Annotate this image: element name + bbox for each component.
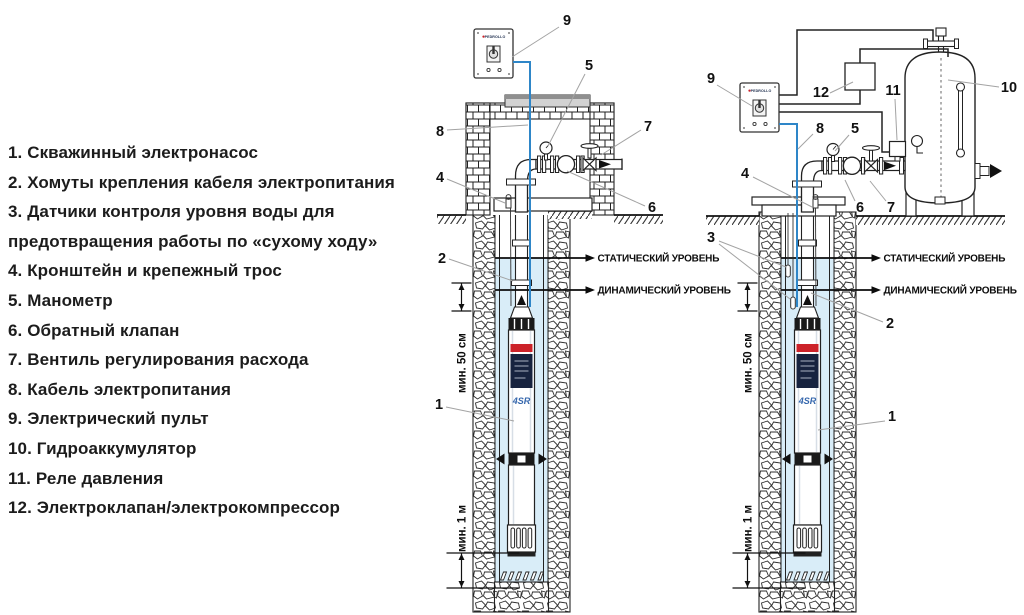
legend-item: 3. Датчики контроля уровня воды для пред… bbox=[8, 197, 444, 256]
cable-clamp bbox=[512, 280, 532, 286]
level-arrow-icon bbox=[586, 286, 596, 293]
callout-9: 9 bbox=[707, 71, 715, 87]
callout-3: 3 bbox=[707, 230, 715, 246]
level-arrow-icon bbox=[872, 286, 882, 293]
riser-pipe bbox=[516, 210, 528, 308]
pump-model-label: 4SR bbox=[512, 396, 531, 406]
check-valve-dome bbox=[797, 307, 819, 318]
callout-1: 1 bbox=[888, 409, 896, 425]
callout-11: 11 bbox=[885, 83, 900, 99]
check-valve bbox=[843, 157, 860, 174]
electrovalve-box bbox=[845, 63, 875, 90]
dimension-min-50cm: мин. 50 см bbox=[452, 283, 472, 393]
control-panel: PEDROLLO bbox=[474, 29, 513, 78]
callout-10: 10 bbox=[1001, 80, 1017, 96]
legend-item: 6. Обратный клапан bbox=[8, 316, 444, 346]
callout-6: 6 bbox=[856, 200, 864, 216]
cable-clamp bbox=[798, 280, 818, 286]
legend-item: 11. Реле давления bbox=[8, 464, 444, 494]
callout-2: 2 bbox=[886, 316, 894, 332]
level-arrow-icon bbox=[586, 254, 596, 261]
well-shaft-left: 4SR мин. 50 см bbox=[447, 210, 731, 612]
pipe-coupling bbox=[799, 240, 817, 246]
tank-drain-valve bbox=[935, 197, 945, 204]
callout-7: 7 bbox=[887, 200, 895, 216]
pump-motor-body bbox=[509, 465, 535, 525]
flow-arrow-icon bbox=[990, 164, 1002, 178]
wellhead-blocks bbox=[762, 205, 836, 216]
page: 4SR мин. 50 см bbox=[0, 0, 1024, 615]
pump-brand-stripe bbox=[797, 344, 819, 352]
diagram-well-with-tank: 4SR мин. 50 см bbox=[706, 28, 1017, 612]
min-1m-label: мин. 1 м bbox=[457, 505, 469, 552]
pump-model-label: 4SR bbox=[798, 396, 817, 406]
callout-9: 9 bbox=[563, 13, 571, 29]
min-50cm-label: мин. 50 см bbox=[457, 333, 469, 393]
callout-6: 6 bbox=[648, 200, 656, 216]
hydroaccumulator-tank bbox=[905, 28, 1002, 216]
callout-8: 8 bbox=[816, 121, 824, 137]
safety-rope bbox=[511, 208, 512, 306]
legend-item: 12. Электроклапан/электрокомпрессор bbox=[8, 493, 444, 523]
pipe-coupling bbox=[513, 240, 531, 246]
chamber-left-wall bbox=[466, 103, 490, 215]
dynamic-level-label: ДИНАМИЧЕСКИЙ УРОВЕНЬ bbox=[598, 284, 731, 297]
min-50cm-label: мин. 50 см bbox=[743, 333, 755, 393]
dimension-min-50cm: мин. 50 см bbox=[738, 283, 758, 393]
tank-body bbox=[905, 52, 975, 203]
pump-brand-stripe bbox=[511, 344, 533, 352]
level-sensor bbox=[791, 297, 796, 309]
dynamic-level-label: ДИНАМИЧЕСКИЙ УРОВЕНЬ bbox=[884, 284, 1017, 297]
legend-item: 10. Гидроаккумулятор bbox=[8, 434, 444, 464]
safety-rope bbox=[816, 208, 817, 306]
legend-item: 5. Манометр bbox=[8, 286, 444, 316]
stone-wall-right bbox=[548, 212, 570, 612]
legend-item: 7. Вентиль регулирования расхода bbox=[8, 345, 444, 375]
tank-outlet bbox=[975, 164, 1002, 179]
diagram-well-basic: 4SR мин. 50 см bbox=[435, 13, 731, 612]
legend-item: 4. Кронштейн и крепежный трос bbox=[8, 256, 444, 286]
legend-item: 8. Кабель электропитания bbox=[8, 375, 444, 405]
stone-wall-right bbox=[834, 212, 856, 612]
legend-item: 2. Хомуты крепления кабеля электропитани… bbox=[8, 168, 444, 198]
level-arrow-icon bbox=[872, 254, 882, 261]
check-valve-dome bbox=[511, 307, 533, 318]
legend-item: 1. Скважинный электронасос bbox=[8, 138, 444, 168]
pump-motor-body bbox=[795, 465, 821, 525]
legend: 1. Скважинный электронасос 2. Хомуты кре… bbox=[8, 138, 444, 523]
well-bottom-gravel bbox=[495, 582, 549, 612]
check-valve bbox=[557, 156, 574, 173]
level-sensor bbox=[786, 265, 791, 277]
legend-item: 9. Электрический пульт bbox=[8, 404, 444, 434]
callout-7: 7 bbox=[644, 119, 652, 135]
chamber-cover-top bbox=[505, 95, 590, 99]
callout-4: 4 bbox=[741, 166, 749, 182]
min-1m-label: мин. 1 м bbox=[743, 505, 755, 552]
static-level-label: СТАТИЧЕСКИЙ УРОВЕНЬ bbox=[884, 252, 1006, 265]
control-panel: PEDROLLO bbox=[740, 83, 779, 132]
wellhead-plate bbox=[752, 197, 845, 205]
tank-top-fitting bbox=[924, 28, 959, 54]
callout-5: 5 bbox=[851, 121, 859, 137]
well-shaft-right: 4SR мин. 50 см bbox=[733, 210, 1017, 612]
callout-5: 5 bbox=[585, 58, 593, 74]
riser-flange bbox=[507, 179, 536, 185]
static-level-label: СТАТИЧЕСКИЙ УРОВЕНЬ bbox=[598, 252, 720, 265]
callout-12: 12 bbox=[813, 85, 829, 101]
panel-brand-label: PEDROLLO bbox=[751, 89, 772, 93]
stone-wall-left bbox=[473, 212, 495, 612]
panel-brand-label: PEDROLLO bbox=[485, 35, 506, 39]
stone-wall-left bbox=[759, 212, 781, 612]
well-bottom-gravel bbox=[781, 582, 835, 612]
